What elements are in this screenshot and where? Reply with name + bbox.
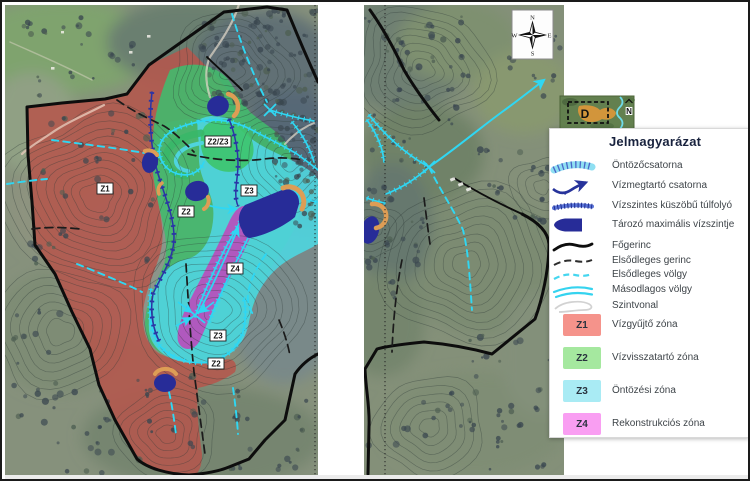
svg-text:Z1: Z1 bbox=[100, 185, 110, 194]
location-inset: D N bbox=[560, 96, 635, 130]
compass-north-label: N bbox=[530, 15, 535, 22]
legend-zone-label: Rekonstrukciós zóna bbox=[612, 417, 705, 431]
compass-rose: N E S W bbox=[511, 10, 553, 59]
svg-text:Z3: Z3 bbox=[244, 187, 254, 196]
bottom-strip bbox=[5, 475, 748, 479]
contour-icon bbox=[550, 297, 596, 315]
water-retaining-channel-icon bbox=[550, 177, 596, 195]
sheet-gap bbox=[318, 5, 364, 475]
legend-item-label: Másodlagos völgy bbox=[612, 283, 692, 297]
legend-panel: Jelmagyarázat Öntözőcsatorna Vízmegtartó… bbox=[549, 128, 749, 438]
zone-label: Z2/Z3 bbox=[205, 136, 231, 147]
compass-east-label: E bbox=[548, 33, 552, 40]
zone-z2-swatch: Z2 bbox=[563, 347, 601, 369]
svg-text:Z2: Z2 bbox=[211, 360, 221, 369]
legend-zone-label: Öntözési zóna bbox=[612, 384, 676, 398]
svg-text:Z3: Z3 bbox=[213, 332, 223, 341]
zone-label: Z2 bbox=[178, 206, 194, 217]
map-figure: Z1 Z2/Z3 Z2 Z3 Z4 Z3 Z2 bbox=[0, 0, 750, 481]
inset-north-label: N bbox=[626, 107, 632, 116]
zone-label: Z1 bbox=[97, 183, 113, 194]
legend-item-label: Szintvonal bbox=[612, 299, 658, 313]
legend-item-label: Tározó maximális vízszintje bbox=[612, 218, 734, 232]
compass-south-label: S bbox=[531, 51, 535, 58]
inset-site-label: D bbox=[581, 107, 590, 121]
legend-item-label: Öntözőcsatorna bbox=[612, 159, 683, 173]
legend-zone-label: Vízgyűjtő zóna bbox=[612, 318, 678, 332]
zone-z3-swatch: Z3 bbox=[563, 380, 601, 402]
legend-title: Jelmagyarázat bbox=[609, 134, 701, 149]
legend-zone-label: Vízvisszatartó zóna bbox=[612, 351, 699, 365]
spillway-icon bbox=[550, 197, 596, 215]
legend-item-label: Elsődleges völgy bbox=[612, 268, 687, 282]
compass-west-label: W bbox=[511, 33, 518, 40]
zone-z4-swatch: Z4 bbox=[563, 413, 601, 435]
zone-label: Z3 bbox=[241, 185, 257, 196]
reservoir-icon bbox=[550, 216, 596, 234]
legend-item-label: Főgerinc bbox=[612, 239, 651, 253]
zone-label: Z2 bbox=[208, 358, 224, 369]
reservoir bbox=[154, 374, 176, 392]
zone-z1-swatch: Z1 bbox=[563, 314, 601, 336]
map-sheet-right: N E S W bbox=[332, 2, 584, 479]
svg-text:Z2: Z2 bbox=[181, 208, 191, 217]
svg-text:Z2/Z3: Z2/Z3 bbox=[208, 138, 229, 147]
irrigation-channel-icon bbox=[550, 157, 596, 175]
map-sheet-left: Z1 Z2/Z3 Z2 Z3 Z4 Z3 Z2 bbox=[2, 2, 352, 479]
zone-label: Z4 bbox=[227, 263, 243, 274]
legend-item-label: Vízszintes küszöbű túlfolyó bbox=[612, 199, 732, 213]
legend-item-label: Elsődleges gerinc bbox=[612, 254, 691, 268]
svg-text:Z4: Z4 bbox=[230, 265, 240, 274]
zone-label: Z3 bbox=[210, 330, 226, 341]
legend-item-label: Vízmegtartó csatorna bbox=[612, 179, 707, 193]
